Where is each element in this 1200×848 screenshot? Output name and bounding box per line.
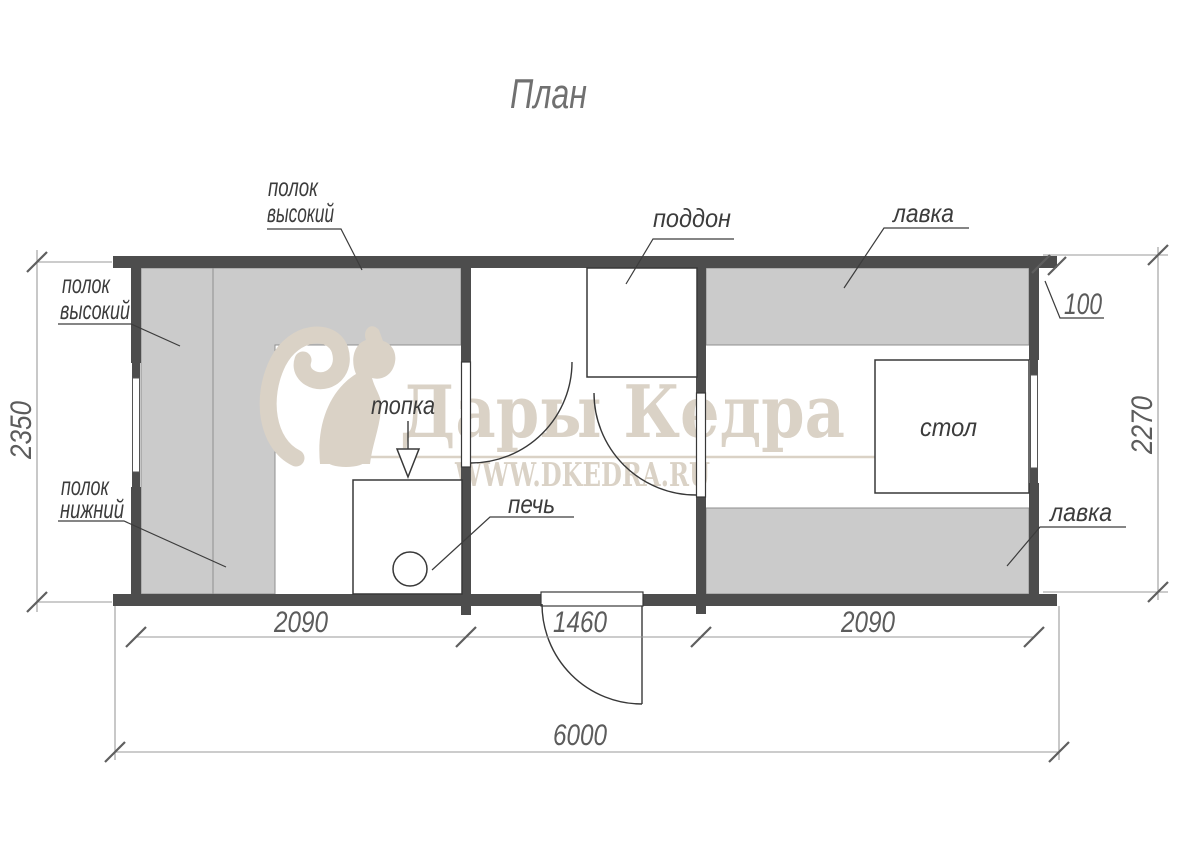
wall-partition1-stub — [461, 606, 471, 615]
label-stove: печь — [508, 489, 555, 519]
label-table: стол — [920, 412, 977, 442]
label-bench-top: лавка — [891, 198, 954, 228]
label-shelf-high-top-line2: высокий — [267, 198, 334, 228]
window-left-glazing — [133, 378, 140, 472]
dim-steam-room-width: 2090 — [273, 606, 328, 639]
wall-right-upper — [1029, 268, 1039, 360]
label-shelf-low-left-line2: нижний — [60, 494, 124, 524]
stove — [353, 480, 462, 594]
wall-top — [113, 256, 1057, 268]
dim-right-height: 2270 — [1126, 396, 1159, 455]
door-leaf-rest — [697, 393, 706, 497]
window-left-jamb-top — [132, 363, 140, 378]
wall-left-upper — [131, 268, 141, 363]
stove-chimney-circle — [393, 552, 427, 586]
door-opening-entrance — [541, 592, 643, 606]
dim-total-width: 6000 — [553, 719, 607, 752]
window-right — [1030, 360, 1038, 483]
dim-rest-room-width: 2090 — [840, 606, 895, 639]
wall-partition2-lower — [696, 497, 706, 594]
plan-svg: Дары Кедра WWW.DKEDRA.RU — [0, 0, 1200, 848]
bench-top-area — [706, 268, 1029, 345]
page-title: План — [510, 70, 587, 117]
window-left — [132, 363, 140, 487]
floor-plan-drawing: Дары Кедра WWW.DKEDRA.RU — [0, 0, 1200, 848]
window-right-glazing — [1031, 375, 1038, 468]
label-firebox: топка — [371, 390, 435, 420]
dim-washing-room-width: 1460 — [553, 606, 607, 639]
wall-left-lower — [131, 487, 141, 594]
door-leaf-steam — [462, 362, 471, 467]
window-right-jamb-bottom — [1030, 468, 1038, 483]
label-bench-bottom: лавка — [1048, 497, 1112, 527]
label-shelf-high-left-line2: высокий — [60, 295, 130, 325]
wall-partition1-upper — [461, 268, 471, 362]
bench-bottom-area — [706, 508, 1029, 594]
window-right-jamb-top — [1030, 360, 1038, 375]
wall-partition2-stub — [696, 606, 706, 614]
label-shower-tray: поддон — [653, 203, 731, 233]
window-left-jamb-bottom — [132, 472, 140, 487]
dim-left-height: 2350 — [5, 401, 38, 460]
dim-wall-overhang: 100 — [1064, 288, 1102, 321]
shower-tray — [587, 268, 697, 377]
